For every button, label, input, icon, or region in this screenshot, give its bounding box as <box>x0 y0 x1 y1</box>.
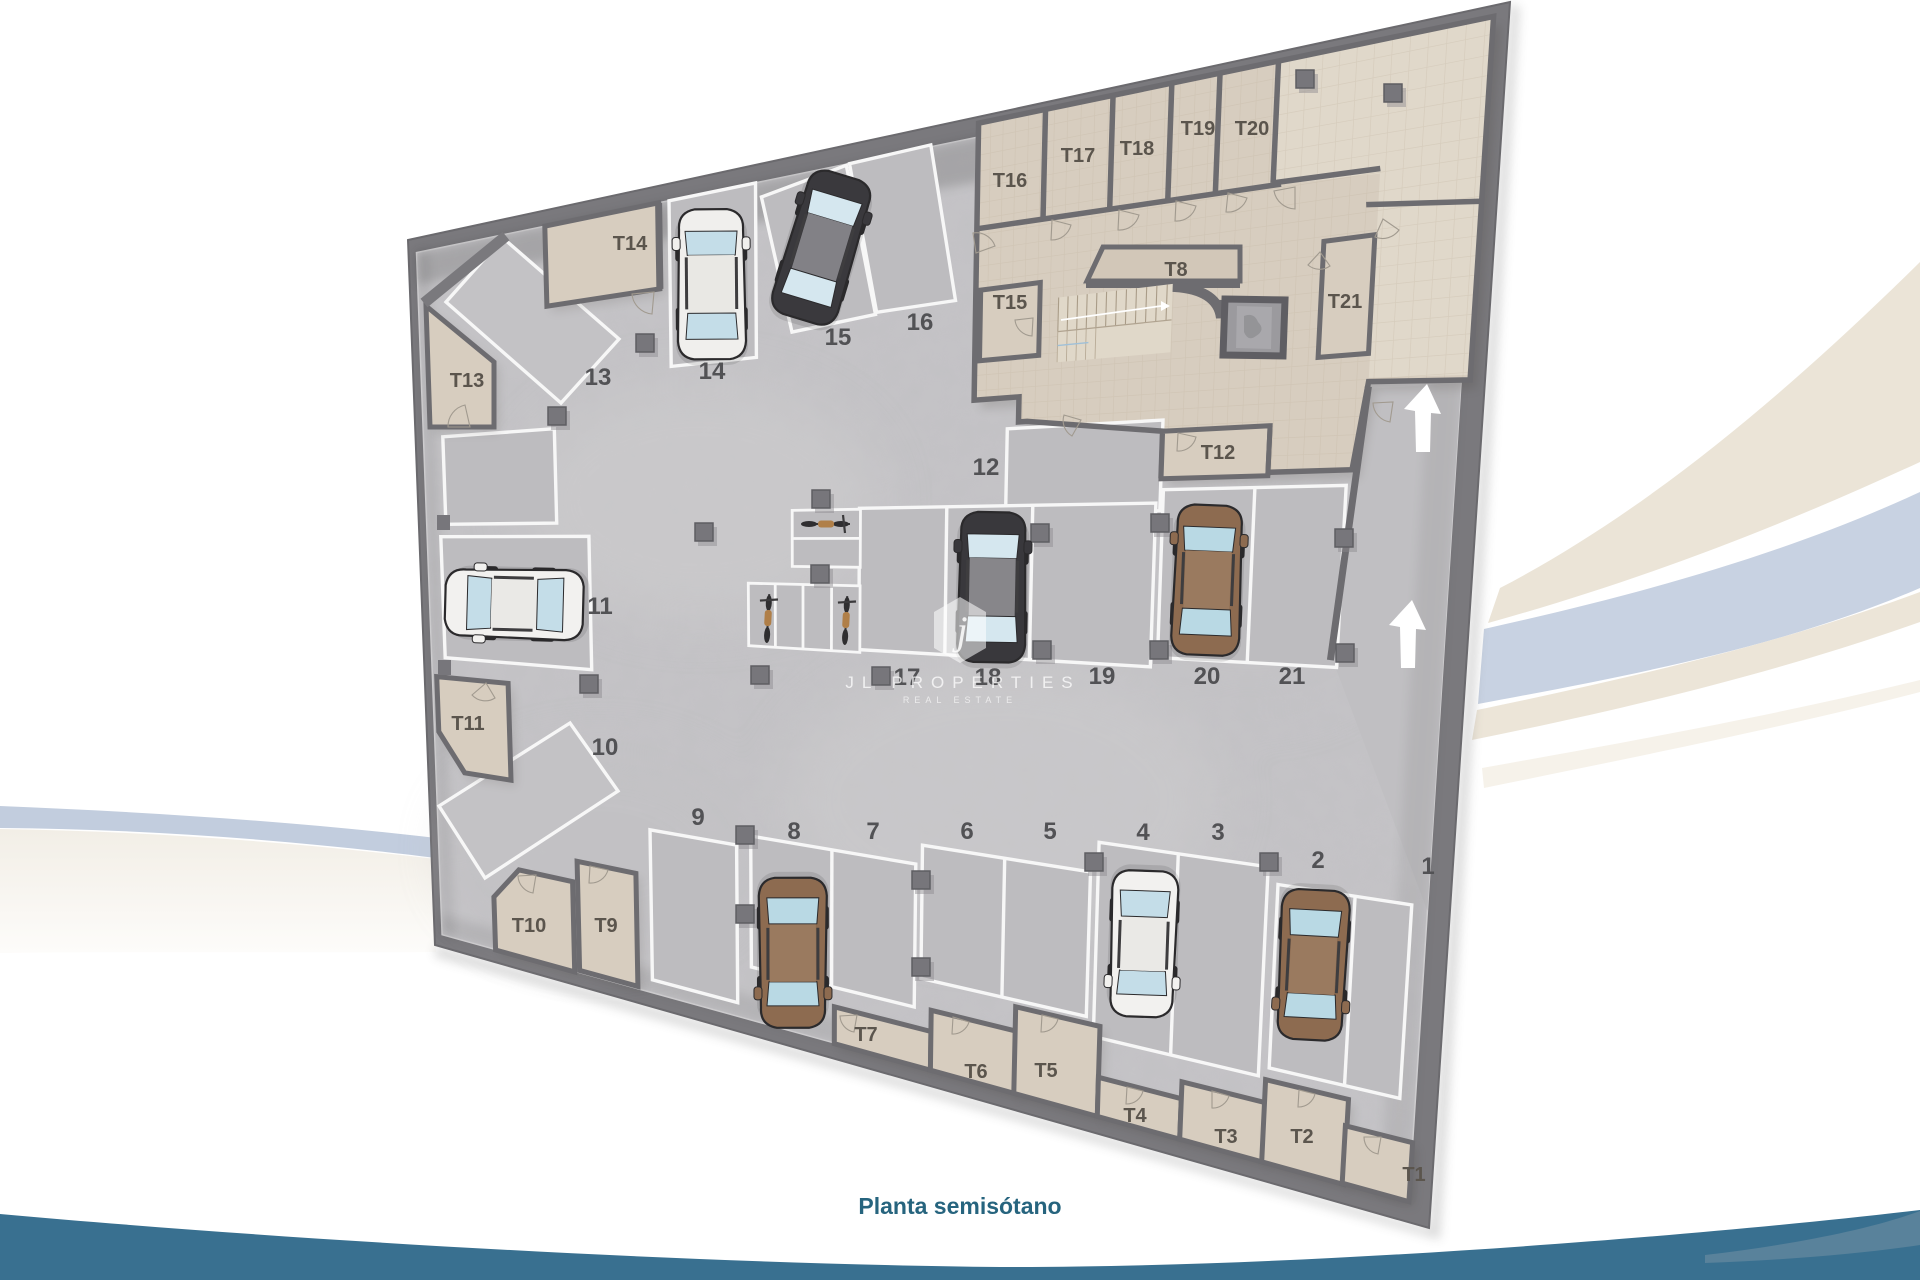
svg-text:T13: T13 <box>450 370 484 392</box>
svg-text:T2: T2 <box>1290 1126 1313 1148</box>
svg-text:20: 20 <box>1194 663 1221 690</box>
svg-text:T16: T16 <box>993 170 1027 192</box>
svg-text:REAL ESTATE: REAL ESTATE <box>903 695 1017 705</box>
svg-text:T9: T9 <box>594 915 617 937</box>
svg-text:T18: T18 <box>1120 138 1154 160</box>
svg-text:T20: T20 <box>1235 118 1269 140</box>
svg-text:T1: T1 <box>1402 1164 1425 1186</box>
svg-text:7: 7 <box>866 818 879 845</box>
svg-text:T11: T11 <box>451 713 484 735</box>
svg-text:6: 6 <box>960 818 973 845</box>
svg-text:13: 13 <box>585 364 612 391</box>
svg-text:T14: T14 <box>613 233 648 255</box>
svg-text:JL PROPERTIES: JL PROPERTIES <box>845 673 1080 692</box>
svg-text:19: 19 <box>1089 663 1116 690</box>
svg-text:T15: T15 <box>993 292 1027 314</box>
svg-text:15: 15 <box>825 324 852 351</box>
svg-text:T10: T10 <box>512 915 546 937</box>
svg-text:T21: T21 <box>1328 291 1362 313</box>
svg-text:11: 11 <box>587 593 612 620</box>
svg-text:14: 14 <box>699 358 726 385</box>
svg-text:2: 2 <box>1311 847 1324 874</box>
svg-text:T6: T6 <box>964 1061 987 1083</box>
svg-text:10: 10 <box>592 734 619 761</box>
svg-text:3: 3 <box>1211 819 1224 846</box>
svg-text:5: 5 <box>1043 818 1056 845</box>
svg-text:T17: T17 <box>1061 145 1095 167</box>
svg-text:4: 4 <box>1136 819 1150 846</box>
svg-text:T7: T7 <box>854 1024 877 1046</box>
svg-text:T19: T19 <box>1181 118 1215 140</box>
svg-text:Planta semisótano: Planta semisótano <box>858 1193 1061 1219</box>
svg-text:T8: T8 <box>1164 259 1187 281</box>
svg-text:T4: T4 <box>1123 1105 1147 1127</box>
svg-text:T3: T3 <box>1214 1126 1237 1148</box>
svg-text:1: 1 <box>1421 853 1434 880</box>
svg-text:T12: T12 <box>1201 442 1235 464</box>
svg-text:16: 16 <box>907 309 934 336</box>
svg-text:21: 21 <box>1279 663 1306 690</box>
svg-text:8: 8 <box>787 818 800 845</box>
svg-text:12: 12 <box>973 454 1000 481</box>
svg-text:T5: T5 <box>1034 1060 1057 1082</box>
svg-text:9: 9 <box>691 804 704 831</box>
